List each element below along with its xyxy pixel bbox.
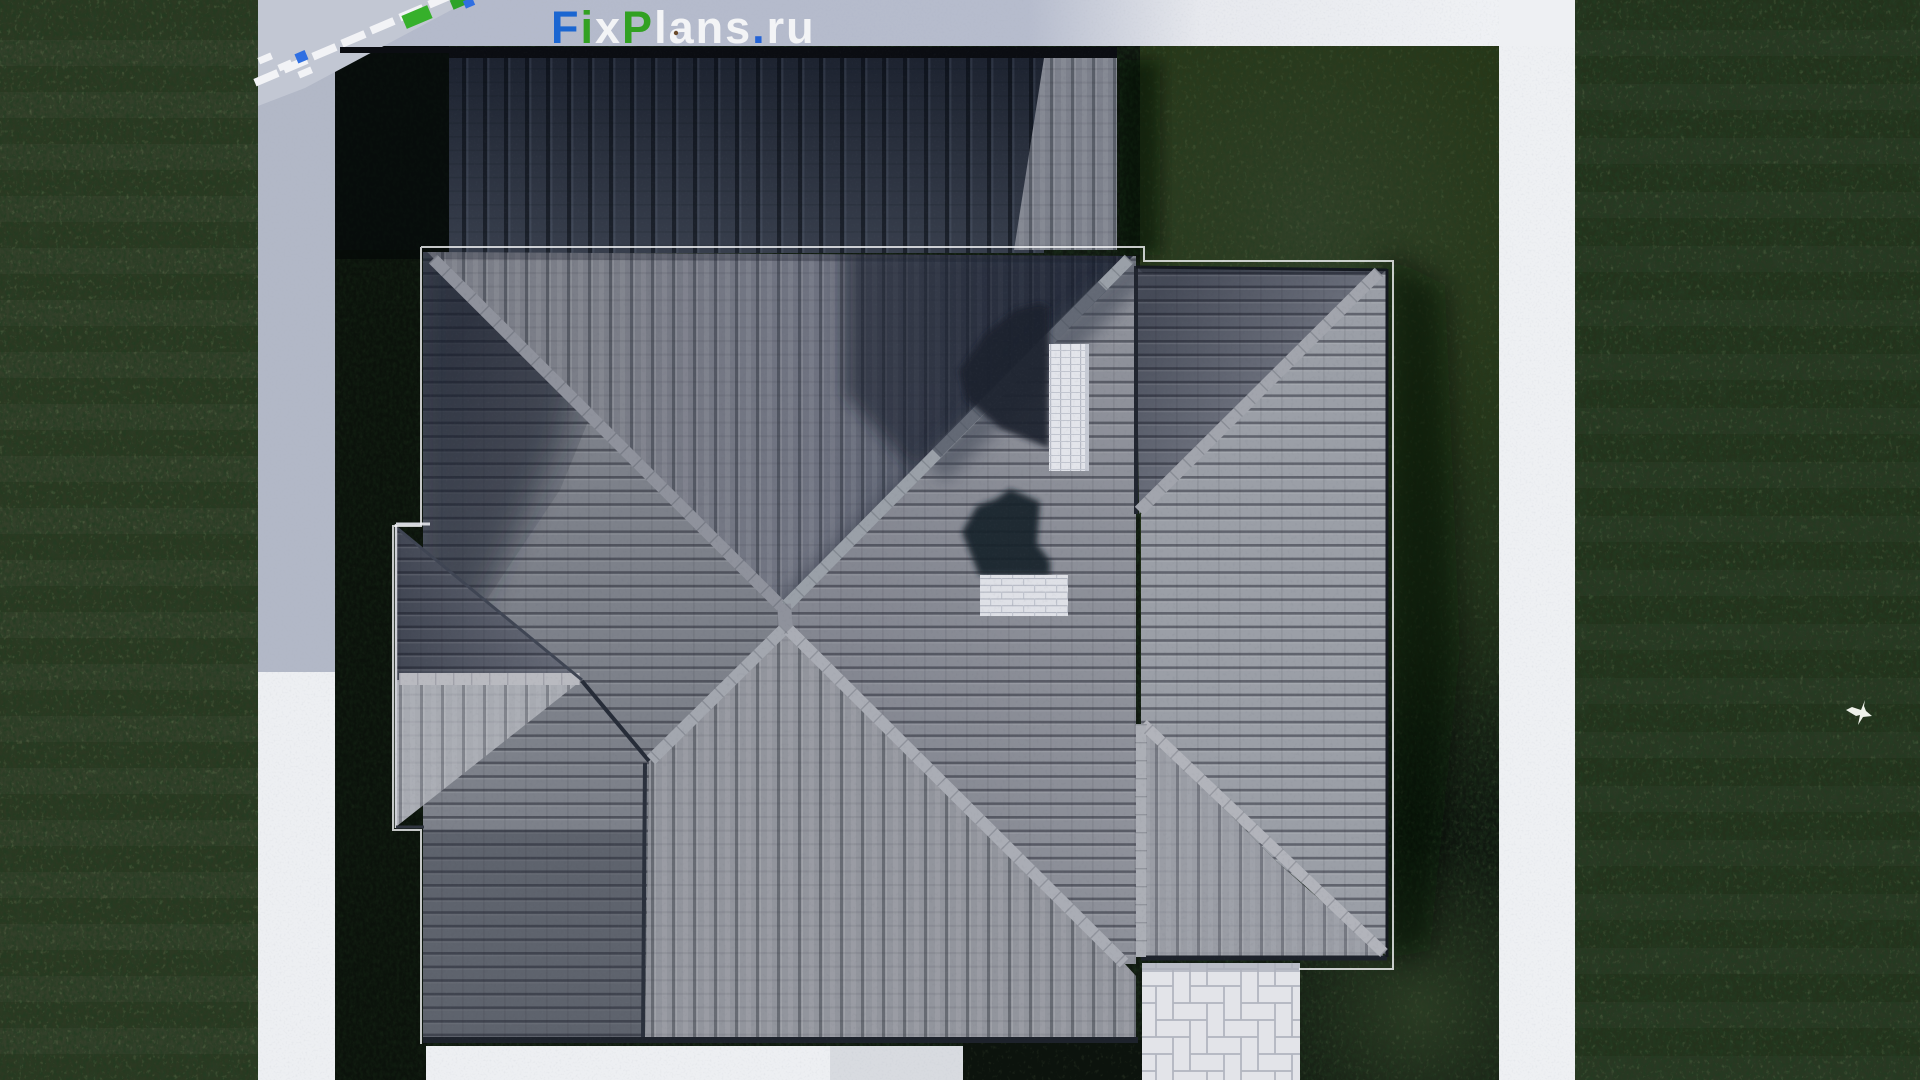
svg-text:FixPlans.ru: FixPlans.ru — [551, 2, 816, 53]
